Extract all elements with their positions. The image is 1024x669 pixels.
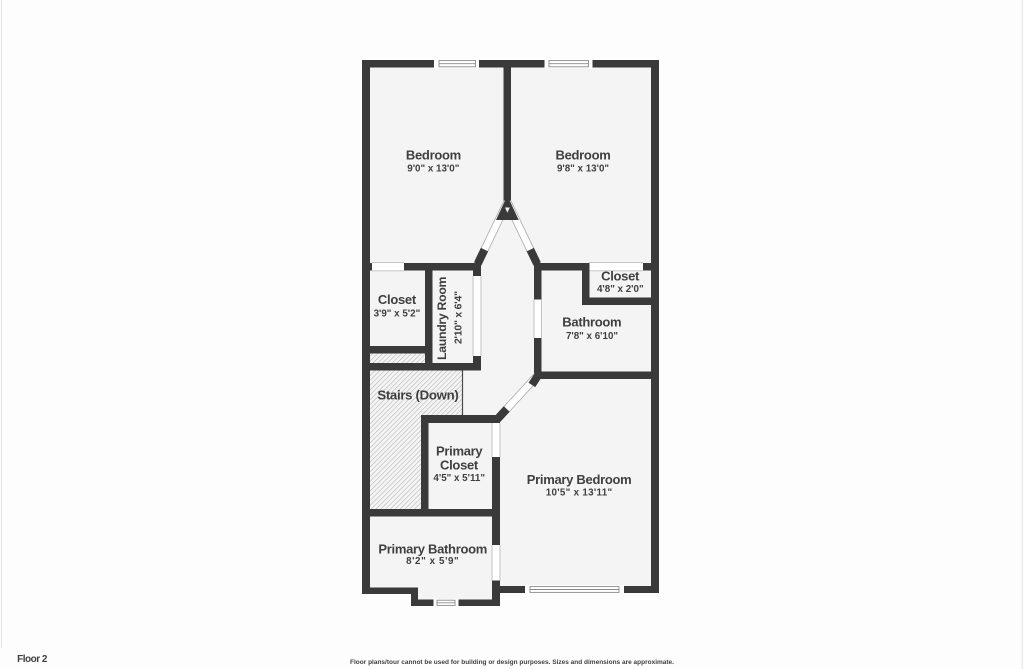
svg-text:Primary: Primary	[436, 443, 483, 458]
svg-text:Floor plans/tour cannot be use: Floor plans/tour cannot be used for buil…	[350, 659, 674, 666]
svg-text:8'2" x 5'9": 8'2" x 5'9"	[406, 556, 459, 567]
svg-text:7'8" x 6'10": 7'8" x 6'10"	[566, 331, 618, 342]
svg-text:3'9" x 5'2": 3'9" x 5'2"	[374, 309, 421, 320]
svg-text:9'8" x 13'0": 9'8" x 13'0"	[557, 164, 609, 175]
svg-text:Closet: Closet	[440, 457, 479, 472]
svg-text:4'5" x 5'11": 4'5" x 5'11"	[433, 473, 485, 484]
svg-text:10'5" x 13'11": 10'5" x 13'11"	[546, 487, 613, 498]
svg-text:2'10" x 6'4": 2'10" x 6'4"	[454, 291, 465, 344]
svg-text:Closet: Closet	[601, 268, 640, 283]
svg-text:4'8" x 2'0": 4'8" x 2'0"	[597, 284, 644, 295]
svg-text:Bathroom: Bathroom	[562, 315, 621, 330]
svg-text:Primary Bedroom: Primary Bedroom	[527, 472, 632, 487]
svg-text:Bedroom: Bedroom	[406, 148, 461, 163]
svg-text:9'0" x 13'0": 9'0" x 13'0"	[407, 164, 459, 175]
svg-text:Laundry Room: Laundry Room	[435, 276, 449, 360]
svg-text:Floor 2: Floor 2	[17, 654, 48, 665]
svg-text:Bedroom: Bedroom	[556, 148, 611, 163]
svg-text:Primary Bathroom: Primary Bathroom	[378, 541, 487, 556]
svg-text:Stairs (Down): Stairs (Down)	[377, 388, 458, 403]
svg-text:Closet: Closet	[378, 292, 417, 307]
